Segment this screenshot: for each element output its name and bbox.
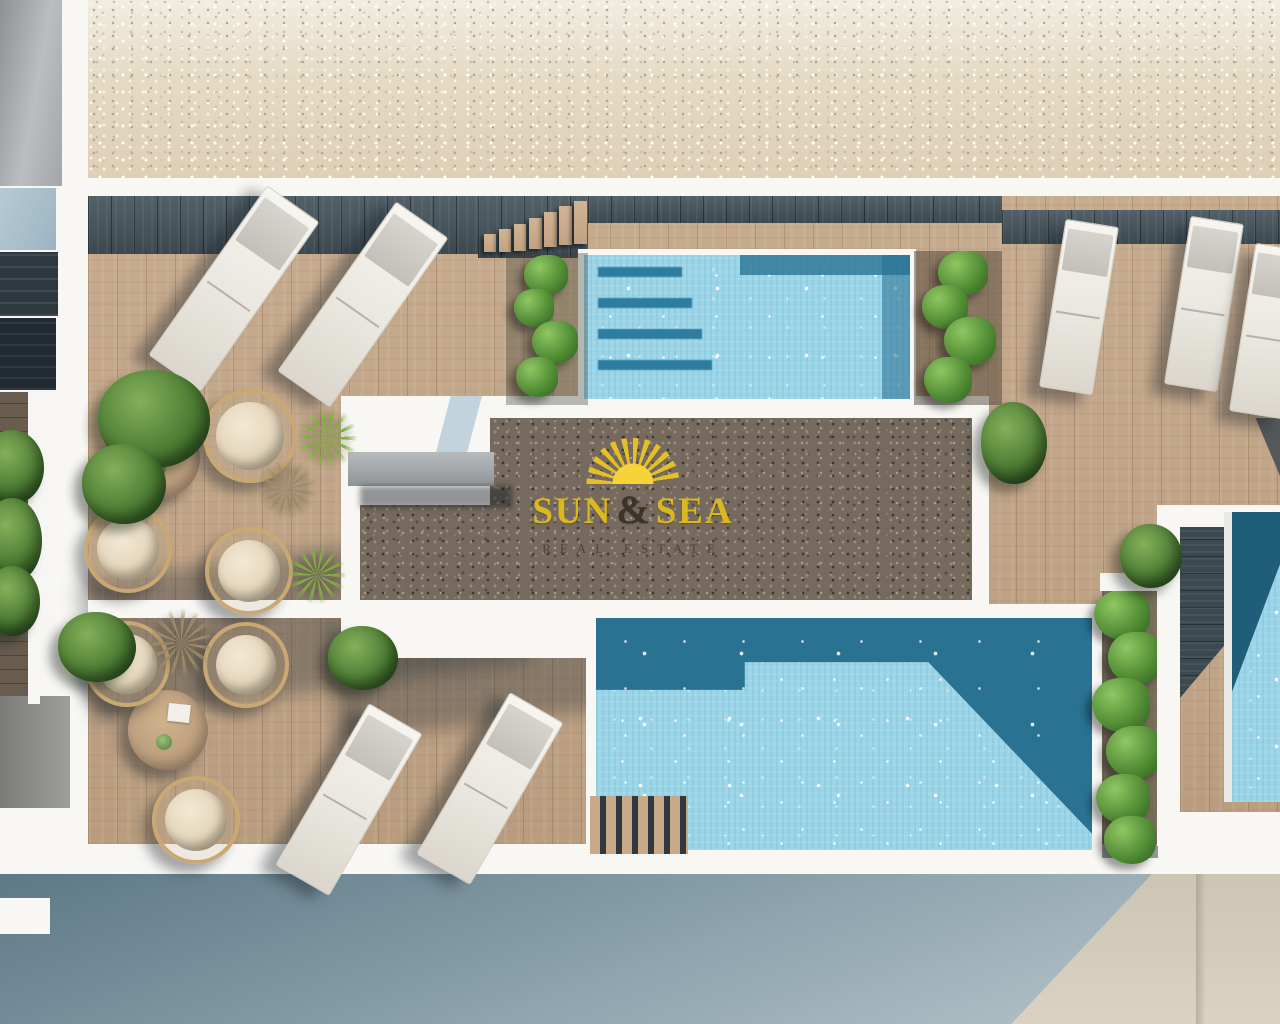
bush [0, 430, 44, 504]
bush [1120, 524, 1182, 588]
upper-pool-rim [578, 249, 916, 405]
sun-and-sea-watermark: SUN&SEA REAL ESTATE [483, 438, 783, 608]
stair-tread [514, 224, 526, 251]
plant-leaves [1108, 632, 1162, 684]
plant-leaves [516, 357, 558, 397]
grey-roof-panel [0, 0, 62, 186]
shaded-walkway-top-center [588, 196, 1002, 223]
pool-deep-shadow [882, 255, 910, 399]
watermark-tagline: REAL ESTATE [542, 541, 724, 557]
dried-palm-plant [152, 604, 210, 682]
aerial-render-rooftop-terrace: { "watermark": { "word1": "SUN", "ampers… [0, 0, 1280, 1024]
egg-chair [152, 776, 240, 864]
gravel-roof-strip [88, 0, 1280, 178]
wall-shadow-on-white [436, 396, 482, 452]
right-pool-sunlit-water [1232, 512, 1280, 802]
planter-strip-upper-left [506, 253, 588, 405]
pergola-roof-lower [0, 318, 56, 390]
pool-step [598, 360, 712, 370]
plant-leaves [1104, 816, 1156, 864]
stair-tread [559, 206, 572, 245]
planter-strip-upper-right [914, 251, 1002, 405]
pool-wood-steps [590, 796, 688, 854]
planter-strip-lower-right [1102, 590, 1158, 858]
watermark-title: SUN&SEA [532, 486, 733, 533]
table-plant [156, 734, 172, 750]
pool-step [598, 329, 702, 339]
stair-tread [529, 218, 542, 249]
neighbour-grey-wall [0, 696, 70, 808]
watermark-ampersand: & [612, 487, 655, 532]
stair-tread [499, 229, 511, 252]
right-pool-water [1232, 512, 1280, 802]
sun-logo-icon [585, 438, 681, 484]
upper-pool-water [584, 255, 910, 399]
bush [58, 612, 136, 682]
street-step-block [0, 898, 50, 934]
plant-leaves [1106, 726, 1162, 778]
dried-palm-plant [258, 458, 316, 520]
watermark-word-sea: SEA [656, 491, 734, 532]
stair-tread [484, 234, 496, 252]
neighbour-roof-lightblue [0, 188, 56, 250]
table-tray [167, 703, 191, 723]
street-wall-edge [1196, 874, 1206, 1024]
pool-step [598, 267, 682, 277]
pergola-roof-upper [0, 252, 58, 316]
egg-chair [205, 527, 293, 615]
concrete-beam [348, 452, 494, 486]
bush [82, 444, 166, 524]
stair-tread [574, 201, 587, 244]
plant-leaves [924, 357, 972, 403]
bush [981, 402, 1047, 484]
staircase [478, 196, 588, 258]
right-bottom-wall [1157, 812, 1280, 846]
pool-step [598, 298, 692, 308]
egg-chair [203, 622, 289, 708]
stair-tread [544, 212, 557, 247]
plant-leaves [1092, 678, 1150, 732]
right-pool-rim [1224, 512, 1232, 802]
watermark-word-sun: SUN [532, 491, 612, 532]
yucca-plant [288, 546, 346, 604]
bush [328, 626, 398, 690]
